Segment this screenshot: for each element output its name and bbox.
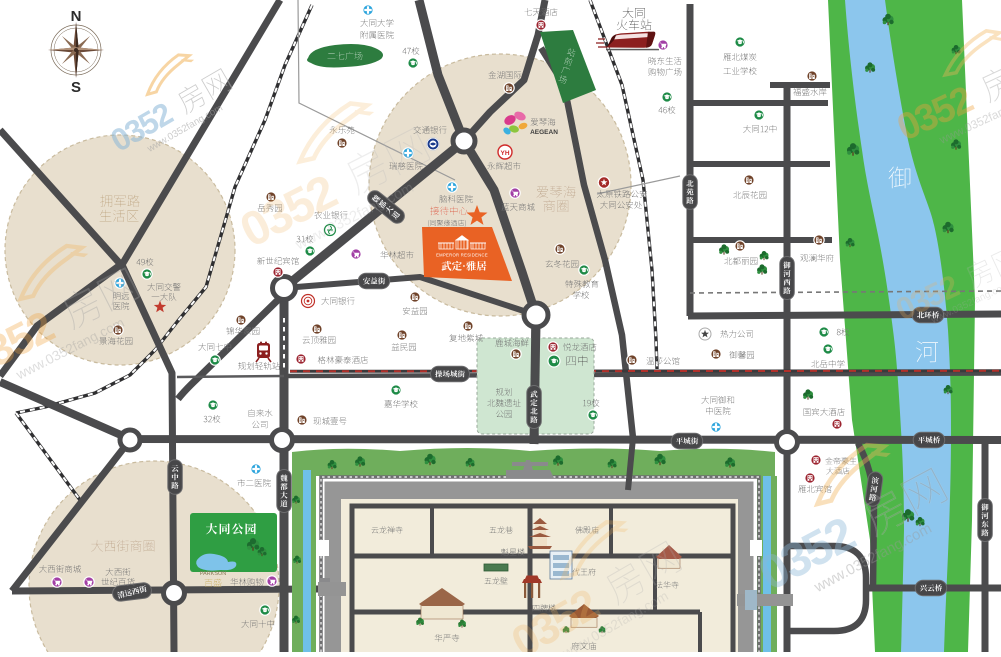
svg-text:N: N (71, 8, 82, 25)
svg-text:EMPEROR RESIDENCE: EMPEROR RESIDENCE (436, 253, 488, 258)
svg-text:AEGEAN: AEGEAN (530, 129, 558, 136)
svg-text:S: S (71, 79, 81, 96)
svg-text:PARKSON: PARKSON (200, 571, 227, 577)
svg-text:YH: YH (500, 150, 509, 157)
